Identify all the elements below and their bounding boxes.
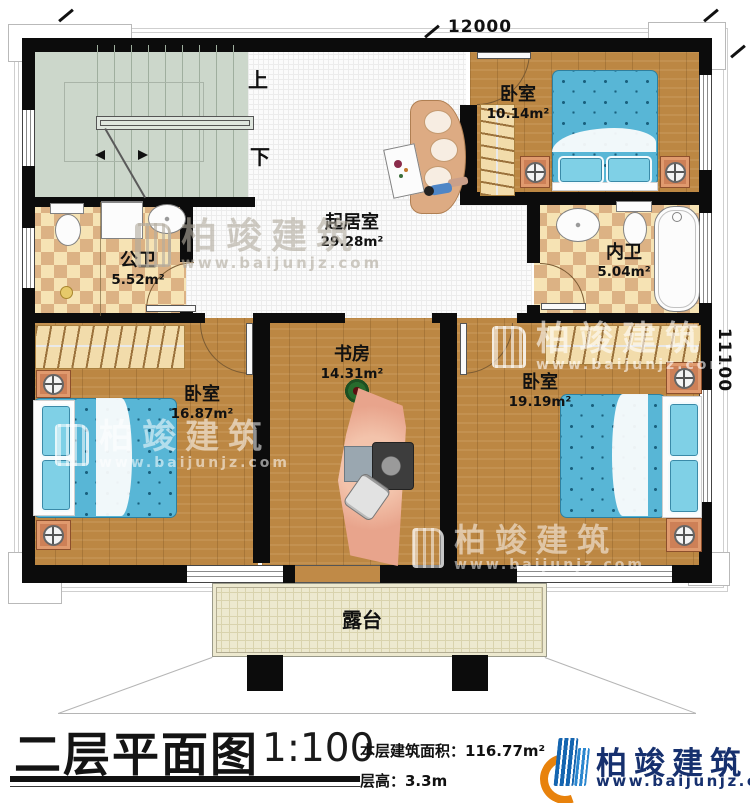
- terrace-door-opening: [295, 565, 380, 583]
- table-flowers: [394, 160, 402, 168]
- clock-icon: [674, 368, 695, 389]
- wall-mid-b: [253, 313, 345, 323]
- room-name: 卧室: [448, 84, 588, 106]
- stair-down-label: 下: [250, 141, 270, 170]
- dimension-tick: [730, 45, 746, 59]
- wall-mid-a: [22, 313, 205, 323]
- toilet-icon: [623, 212, 647, 246]
- clock-icon: [525, 162, 546, 183]
- window-right-bath: [699, 213, 712, 303]
- toilet-tank: [616, 201, 652, 212]
- floor-height-stat: 层高：3.3m: [360, 770, 447, 791]
- room-label-living: 起居室 29.28m²: [282, 212, 422, 250]
- dimension-right: 11100: [714, 320, 734, 400]
- window-left-bath: [22, 228, 35, 288]
- brand-website: www.baijunjz.com: [596, 772, 750, 790]
- window-left-stair: [22, 110, 35, 166]
- pillow-icon: [668, 402, 700, 458]
- room-area: 10.14m²: [448, 106, 588, 122]
- room-name: 公卫: [68, 250, 208, 272]
- floor-drain-icon: [60, 286, 73, 299]
- washer-icon: [101, 201, 143, 239]
- room-area: 5.04m²: [554, 264, 694, 280]
- porch-line-left: [58, 657, 212, 714]
- room-area: 16.87m²: [132, 406, 272, 422]
- clock-icon: [43, 525, 64, 546]
- room-area: 5.52m²: [68, 272, 208, 288]
- door-leaf-bedroomBR: [460, 323, 467, 375]
- title-underline-thin: [10, 786, 360, 787]
- room-name: 卧室: [132, 384, 272, 406]
- terrace-column-right: [452, 655, 488, 691]
- porch-line-right: [545, 657, 696, 714]
- dimension-tick: [703, 9, 719, 23]
- wardrobe-icon: [545, 325, 701, 365]
- pillow-icon: [668, 458, 700, 514]
- pillow-icon: [40, 404, 72, 458]
- floor-area-stat: 本层建筑面积：116.77m²: [360, 740, 545, 761]
- title-underline-thick: [10, 776, 360, 782]
- window-bottom-bedroomBR: [517, 565, 672, 583]
- sheet-title: 二层平面图: [14, 716, 259, 785]
- window-bottom-bedroomBL: [187, 565, 283, 583]
- room-label-bedroomBR: 卧室 19.19m²: [470, 372, 610, 410]
- door-leaf-bedroomBL: [246, 323, 253, 375]
- toilet-icon: [55, 214, 81, 246]
- wall-bedroomBL-study: [253, 323, 270, 563]
- room-label-bedroomTR: 卧室 10.14m²: [448, 84, 588, 122]
- stair-arrow-right-icon: [138, 150, 148, 160]
- door-leaf-public-bath: [146, 305, 196, 312]
- nightstand-icon: [666, 518, 702, 552]
- person-head: [424, 186, 434, 196]
- pillow-icon: [606, 156, 652, 184]
- clock-icon: [665, 162, 686, 183]
- wall-mid-d: [517, 313, 712, 323]
- room-name: 书房: [282, 344, 422, 366]
- bed-sheet: [612, 394, 648, 516]
- pillow-icon: [558, 156, 604, 184]
- door-leaf-bedroomTR: [477, 52, 531, 59]
- room-label-public-bath: 公卫 5.52m²: [68, 250, 208, 288]
- toilet-tank: [50, 203, 84, 214]
- nightstand-icon: [520, 156, 550, 188]
- stair-arrow-left-icon: [95, 150, 105, 160]
- sofa-cushion: [430, 138, 458, 162]
- room-name: 卧室: [470, 372, 610, 394]
- porch-line-bottom: [58, 713, 696, 714]
- nightstand-icon: [660, 156, 690, 188]
- clock-icon: [43, 374, 64, 395]
- sink-icon: [148, 204, 186, 234]
- room-label-bedroomBL: 卧室 16.87m²: [132, 384, 272, 422]
- pillow-icon: [40, 458, 72, 512]
- clock-icon: [674, 525, 695, 546]
- floor-plan-sheet: 上 下: [0, 0, 750, 803]
- stair-up-label: 上: [248, 64, 268, 93]
- wall-mid-c: [432, 313, 457, 323]
- room-area: 29.28m²: [282, 234, 422, 250]
- nightstand-icon: [36, 370, 71, 398]
- window-right-bedroomTR: [699, 75, 712, 170]
- nightstand-icon: [36, 520, 71, 550]
- room-label-terrace: 露台: [292, 608, 432, 632]
- brand-logo-icon: [540, 736, 592, 798]
- dimension-tick: [58, 9, 74, 23]
- nightstand-icon: [666, 362, 702, 394]
- bathtub-drain-icon: [672, 212, 682, 222]
- stair-landing-rail: [96, 116, 254, 130]
- door-leaf-inner-bath: [541, 303, 586, 310]
- sink-icon: [556, 208, 600, 242]
- sheet-scale: 1:100: [262, 726, 374, 771]
- bed-sheet: [96, 398, 132, 516]
- room-name: 露台: [292, 608, 432, 632]
- wardrobe-icon: [35, 325, 185, 369]
- room-label-study: 书房 14.31m²: [282, 344, 422, 382]
- room-label-inner-bath: 内卫 5.04m²: [554, 242, 694, 280]
- wall-study-bedroomBR: [440, 323, 457, 568]
- wall-inner-bath-left-upper: [527, 205, 540, 263]
- room-area: 14.31m²: [282, 366, 422, 382]
- room-name: 内卫: [554, 242, 694, 264]
- room-name: 起居室: [282, 212, 422, 234]
- terrace-column-left: [247, 655, 283, 691]
- room-area: 19.19m²: [470, 394, 610, 410]
- wall-inner-bath-left-stub: [527, 305, 540, 313]
